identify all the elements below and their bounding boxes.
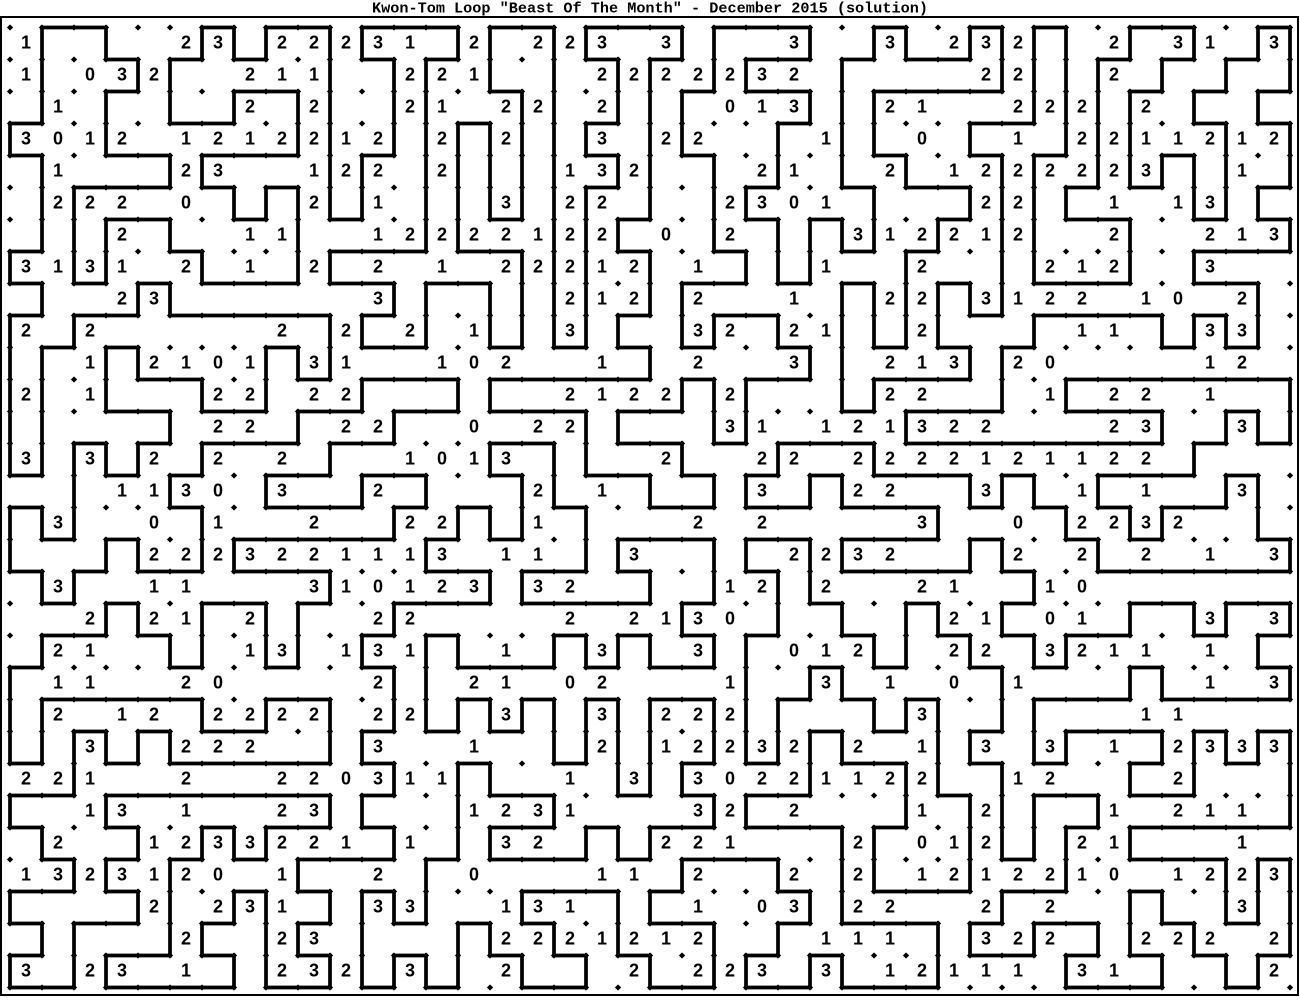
svg-text:2: 2 xyxy=(821,576,831,596)
svg-text:2: 2 xyxy=(597,192,607,212)
svg-text:1: 1 xyxy=(981,608,991,628)
svg-text:2: 2 xyxy=(1077,640,1087,660)
svg-text:1: 1 xyxy=(181,800,191,820)
svg-text:2: 2 xyxy=(789,544,799,564)
svg-text:2: 2 xyxy=(181,736,191,756)
svg-text:2: 2 xyxy=(917,448,927,468)
svg-text:2: 2 xyxy=(117,288,127,308)
svg-text:1: 1 xyxy=(597,352,607,372)
svg-text:2: 2 xyxy=(245,96,255,116)
svg-text:2: 2 xyxy=(629,288,639,308)
svg-text:1: 1 xyxy=(501,672,511,692)
svg-text:2: 2 xyxy=(373,256,383,276)
svg-text:3: 3 xyxy=(981,480,991,500)
svg-text:1: 1 xyxy=(629,864,639,884)
svg-text:2: 2 xyxy=(309,256,319,276)
svg-text:2: 2 xyxy=(885,384,895,404)
svg-text:1: 1 xyxy=(149,864,159,884)
svg-text:0: 0 xyxy=(565,672,575,692)
svg-text:1: 1 xyxy=(661,608,671,628)
svg-text:2: 2 xyxy=(533,416,543,436)
svg-text:3: 3 xyxy=(693,320,703,340)
svg-text:2: 2 xyxy=(437,64,447,84)
svg-text:1: 1 xyxy=(597,384,607,404)
svg-text:2: 2 xyxy=(1109,160,1119,180)
svg-text:2: 2 xyxy=(533,96,543,116)
svg-text:2: 2 xyxy=(341,416,351,436)
svg-text:2: 2 xyxy=(1269,928,1279,948)
svg-text:2: 2 xyxy=(405,224,415,244)
svg-text:3: 3 xyxy=(1205,256,1215,276)
svg-text:2: 2 xyxy=(629,928,639,948)
svg-text:2: 2 xyxy=(501,128,511,148)
svg-text:1: 1 xyxy=(917,96,927,116)
svg-text:1: 1 xyxy=(405,32,415,52)
svg-text:1: 1 xyxy=(949,960,959,980)
svg-text:1: 1 xyxy=(181,352,191,372)
svg-text:1: 1 xyxy=(373,192,383,212)
svg-text:2: 2 xyxy=(789,864,799,884)
svg-text:2: 2 xyxy=(1109,384,1119,404)
svg-text:2: 2 xyxy=(1237,352,1247,372)
svg-text:1: 1 xyxy=(565,768,575,788)
svg-text:2: 2 xyxy=(1077,832,1087,852)
svg-text:0: 0 xyxy=(437,448,447,468)
svg-text:2: 2 xyxy=(181,160,191,180)
svg-text:3: 3 xyxy=(533,800,543,820)
svg-text:2: 2 xyxy=(1109,128,1119,148)
svg-text:2: 2 xyxy=(1173,512,1183,532)
svg-text:0: 0 xyxy=(789,640,799,660)
svg-text:2: 2 xyxy=(1013,64,1023,84)
svg-text:1: 1 xyxy=(245,224,255,244)
svg-text:1: 1 xyxy=(117,704,127,724)
svg-text:1: 1 xyxy=(405,640,415,660)
svg-text:2: 2 xyxy=(437,576,447,596)
svg-text:2: 2 xyxy=(725,704,735,724)
svg-text:1: 1 xyxy=(1109,320,1119,340)
svg-text:2: 2 xyxy=(949,608,959,628)
svg-text:3: 3 xyxy=(725,416,735,436)
svg-text:2: 2 xyxy=(853,864,863,884)
svg-text:2: 2 xyxy=(565,928,575,948)
svg-text:2: 2 xyxy=(85,864,95,884)
svg-text:2: 2 xyxy=(885,480,895,500)
svg-text:1: 1 xyxy=(821,768,831,788)
svg-text:3: 3 xyxy=(981,32,991,52)
svg-text:2: 2 xyxy=(949,640,959,660)
svg-text:1: 1 xyxy=(501,896,511,916)
svg-text:3: 3 xyxy=(1141,512,1151,532)
svg-text:3: 3 xyxy=(1141,160,1151,180)
svg-text:1: 1 xyxy=(917,800,927,820)
svg-text:3: 3 xyxy=(629,544,639,564)
svg-text:2: 2 xyxy=(309,512,319,532)
svg-text:2: 2 xyxy=(213,544,223,564)
svg-text:1: 1 xyxy=(1141,288,1151,308)
svg-text:3: 3 xyxy=(21,256,31,276)
svg-text:2: 2 xyxy=(981,896,991,916)
svg-text:3: 3 xyxy=(821,672,831,692)
svg-text:1: 1 xyxy=(981,864,991,884)
svg-text:1: 1 xyxy=(725,672,735,692)
svg-text:2: 2 xyxy=(149,608,159,628)
svg-text:3: 3 xyxy=(917,704,927,724)
svg-text:2: 2 xyxy=(21,320,31,340)
svg-text:3: 3 xyxy=(1237,896,1247,916)
svg-text:1: 1 xyxy=(597,864,607,884)
svg-text:1: 1 xyxy=(917,736,927,756)
svg-text:3: 3 xyxy=(1205,736,1215,756)
svg-text:3: 3 xyxy=(1269,544,1279,564)
svg-text:2: 2 xyxy=(53,832,63,852)
svg-text:2: 2 xyxy=(917,384,927,404)
svg-text:2: 2 xyxy=(85,608,95,628)
svg-text:1: 1 xyxy=(725,832,735,852)
svg-text:2: 2 xyxy=(437,224,447,244)
svg-text:2: 2 xyxy=(917,576,927,596)
svg-text:3: 3 xyxy=(1141,416,1151,436)
svg-text:2: 2 xyxy=(309,384,319,404)
svg-text:2: 2 xyxy=(725,224,735,244)
svg-text:1: 1 xyxy=(949,160,959,180)
svg-text:2: 2 xyxy=(1045,896,1055,916)
svg-text:1: 1 xyxy=(1013,960,1023,980)
svg-text:1: 1 xyxy=(1237,160,1247,180)
svg-text:2: 2 xyxy=(1013,352,1023,372)
svg-text:1: 1 xyxy=(853,768,863,788)
svg-text:1: 1 xyxy=(885,416,895,436)
svg-text:2: 2 xyxy=(501,960,511,980)
svg-text:1: 1 xyxy=(1205,800,1215,820)
svg-text:2: 2 xyxy=(693,736,703,756)
svg-text:2: 2 xyxy=(533,480,543,500)
svg-text:2: 2 xyxy=(757,448,767,468)
svg-text:2: 2 xyxy=(277,544,287,564)
svg-text:2: 2 xyxy=(405,64,415,84)
svg-text:3: 3 xyxy=(53,576,63,596)
svg-text:3: 3 xyxy=(757,480,767,500)
svg-text:1: 1 xyxy=(1077,320,1087,340)
svg-text:2: 2 xyxy=(1077,512,1087,532)
svg-text:3: 3 xyxy=(1269,736,1279,756)
svg-text:0: 0 xyxy=(213,672,223,692)
svg-text:1: 1 xyxy=(501,544,511,564)
svg-text:1: 1 xyxy=(565,800,575,820)
svg-text:2: 2 xyxy=(245,64,255,84)
svg-text:1: 1 xyxy=(885,672,895,692)
svg-text:0: 0 xyxy=(213,352,223,372)
svg-text:3: 3 xyxy=(693,608,703,628)
svg-text:2: 2 xyxy=(501,928,511,948)
svg-text:2: 2 xyxy=(1205,128,1215,148)
svg-text:0: 0 xyxy=(469,864,479,884)
svg-text:1: 1 xyxy=(1013,672,1023,692)
svg-text:1: 1 xyxy=(181,608,191,628)
svg-text:2: 2 xyxy=(277,320,287,340)
svg-text:1: 1 xyxy=(693,256,703,276)
svg-text:2: 2 xyxy=(1045,768,1055,788)
svg-text:3: 3 xyxy=(373,32,383,52)
svg-text:2: 2 xyxy=(661,832,671,852)
svg-text:2: 2 xyxy=(405,96,415,116)
svg-text:2: 2 xyxy=(597,736,607,756)
svg-text:0: 0 xyxy=(949,672,959,692)
svg-text:2: 2 xyxy=(725,64,735,84)
svg-text:3: 3 xyxy=(1269,864,1279,884)
svg-text:1: 1 xyxy=(469,736,479,756)
svg-text:3: 3 xyxy=(1077,960,1087,980)
svg-text:2: 2 xyxy=(1109,256,1119,276)
svg-text:3: 3 xyxy=(245,544,255,564)
svg-text:2: 2 xyxy=(949,864,959,884)
svg-text:2: 2 xyxy=(725,960,735,980)
svg-text:1: 1 xyxy=(341,352,351,372)
svg-text:2: 2 xyxy=(789,736,799,756)
svg-text:3: 3 xyxy=(853,224,863,244)
svg-text:2: 2 xyxy=(1205,928,1215,948)
svg-text:2: 2 xyxy=(1173,800,1183,820)
svg-text:2: 2 xyxy=(885,288,895,308)
svg-text:3: 3 xyxy=(21,960,31,980)
svg-text:2: 2 xyxy=(245,704,255,724)
svg-text:2: 2 xyxy=(309,32,319,52)
svg-text:1: 1 xyxy=(437,256,447,276)
svg-text:2: 2 xyxy=(1013,448,1023,468)
svg-text:1: 1 xyxy=(277,864,287,884)
svg-text:Kwon-Tom Loop "Beast Of The Mo: Kwon-Tom Loop "Beast Of The Month" - Dec… xyxy=(372,0,928,18)
svg-text:1: 1 xyxy=(917,352,927,372)
svg-text:3: 3 xyxy=(757,64,767,84)
svg-text:3: 3 xyxy=(1237,320,1247,340)
svg-text:3: 3 xyxy=(309,928,319,948)
svg-text:0: 0 xyxy=(373,576,383,596)
svg-text:1: 1 xyxy=(821,928,831,948)
svg-text:2: 2 xyxy=(405,704,415,724)
svg-text:1: 1 xyxy=(277,224,287,244)
svg-text:3: 3 xyxy=(629,768,639,788)
svg-text:2: 2 xyxy=(693,288,703,308)
svg-text:2: 2 xyxy=(213,416,223,436)
svg-text:0: 0 xyxy=(789,192,799,212)
svg-text:3: 3 xyxy=(117,864,127,884)
svg-text:2: 2 xyxy=(693,704,703,724)
svg-text:3: 3 xyxy=(373,640,383,660)
svg-text:2: 2 xyxy=(789,768,799,788)
svg-text:3: 3 xyxy=(693,800,703,820)
svg-text:2: 2 xyxy=(245,416,255,436)
svg-text:2: 2 xyxy=(533,32,543,52)
svg-text:1: 1 xyxy=(85,768,95,788)
svg-text:1: 1 xyxy=(597,288,607,308)
svg-text:1: 1 xyxy=(1173,192,1183,212)
svg-text:1: 1 xyxy=(245,352,255,372)
svg-text:0: 0 xyxy=(725,608,735,628)
svg-text:1: 1 xyxy=(1077,480,1087,500)
svg-text:1: 1 xyxy=(341,832,351,852)
svg-text:2: 2 xyxy=(661,384,671,404)
svg-text:1: 1 xyxy=(1205,384,1215,404)
svg-text:2: 2 xyxy=(501,800,511,820)
svg-text:2: 2 xyxy=(373,864,383,884)
svg-text:2: 2 xyxy=(1173,928,1183,948)
svg-text:2: 2 xyxy=(981,64,991,84)
svg-text:2: 2 xyxy=(1013,160,1023,180)
svg-text:2: 2 xyxy=(789,448,799,468)
svg-text:2: 2 xyxy=(373,608,383,628)
svg-text:1: 1 xyxy=(917,864,927,884)
svg-text:0: 0 xyxy=(661,224,671,244)
svg-text:1: 1 xyxy=(597,256,607,276)
svg-text:1: 1 xyxy=(1141,480,1151,500)
svg-text:2: 2 xyxy=(949,448,959,468)
svg-text:2: 2 xyxy=(1109,64,1119,84)
svg-text:1: 1 xyxy=(725,576,735,596)
svg-text:3: 3 xyxy=(981,928,991,948)
svg-text:1: 1 xyxy=(85,384,95,404)
svg-text:2: 2 xyxy=(437,512,447,532)
svg-text:2: 2 xyxy=(181,256,191,276)
svg-text:1: 1 xyxy=(1045,576,1055,596)
svg-text:0: 0 xyxy=(149,512,159,532)
svg-text:1: 1 xyxy=(277,896,287,916)
svg-text:0: 0 xyxy=(85,64,95,84)
svg-text:3: 3 xyxy=(117,960,127,980)
svg-text:2: 2 xyxy=(309,544,319,564)
svg-text:2: 2 xyxy=(949,416,959,436)
svg-text:1: 1 xyxy=(1237,800,1247,820)
svg-text:3: 3 xyxy=(565,320,575,340)
svg-text:2: 2 xyxy=(661,128,671,148)
svg-text:2: 2 xyxy=(757,512,767,532)
svg-text:1: 1 xyxy=(1205,352,1215,372)
svg-text:2: 2 xyxy=(565,192,575,212)
svg-text:2: 2 xyxy=(181,928,191,948)
svg-text:1: 1 xyxy=(53,96,63,116)
svg-text:2: 2 xyxy=(725,320,735,340)
svg-text:1: 1 xyxy=(981,960,991,980)
svg-text:1: 1 xyxy=(53,256,63,276)
svg-text:2: 2 xyxy=(789,64,799,84)
svg-text:2: 2 xyxy=(501,96,511,116)
svg-text:2: 2 xyxy=(629,160,639,180)
svg-text:1: 1 xyxy=(469,448,479,468)
svg-text:2: 2 xyxy=(629,608,639,628)
svg-text:2: 2 xyxy=(53,640,63,660)
svg-text:2: 2 xyxy=(981,640,991,660)
svg-text:2: 2 xyxy=(885,160,895,180)
svg-text:1: 1 xyxy=(117,480,127,500)
svg-text:2: 2 xyxy=(1013,96,1023,116)
svg-text:3: 3 xyxy=(53,512,63,532)
svg-text:1: 1 xyxy=(885,224,895,244)
svg-text:2: 2 xyxy=(981,160,991,180)
svg-text:1: 1 xyxy=(1205,32,1215,52)
svg-text:3: 3 xyxy=(309,352,319,372)
svg-text:1: 1 xyxy=(533,224,543,244)
svg-text:2: 2 xyxy=(149,64,159,84)
svg-text:3: 3 xyxy=(501,448,511,468)
svg-text:2: 2 xyxy=(757,576,767,596)
svg-text:2: 2 xyxy=(53,704,63,724)
svg-text:3: 3 xyxy=(213,832,223,852)
svg-text:1: 1 xyxy=(885,960,895,980)
svg-text:3: 3 xyxy=(245,896,255,916)
svg-text:1: 1 xyxy=(341,544,351,564)
svg-text:3: 3 xyxy=(1269,224,1279,244)
svg-text:2: 2 xyxy=(533,832,543,852)
svg-text:3: 3 xyxy=(1269,672,1279,692)
svg-text:1: 1 xyxy=(533,512,543,532)
svg-text:3: 3 xyxy=(437,544,447,564)
svg-text:1: 1 xyxy=(1141,704,1151,724)
svg-text:2: 2 xyxy=(885,896,895,916)
svg-text:1: 1 xyxy=(821,128,831,148)
svg-text:2: 2 xyxy=(245,736,255,756)
svg-text:3: 3 xyxy=(597,128,607,148)
svg-text:1: 1 xyxy=(405,768,415,788)
svg-text:3: 3 xyxy=(789,352,799,372)
svg-text:3: 3 xyxy=(1205,320,1215,340)
svg-text:1: 1 xyxy=(501,640,511,660)
svg-text:3: 3 xyxy=(757,960,767,980)
svg-text:3: 3 xyxy=(405,960,415,980)
svg-text:3: 3 xyxy=(501,704,511,724)
svg-text:2: 2 xyxy=(1109,224,1119,244)
svg-text:1: 1 xyxy=(821,192,831,212)
svg-text:3: 3 xyxy=(309,960,319,980)
svg-text:2: 2 xyxy=(1013,224,1023,244)
svg-text:3: 3 xyxy=(501,192,511,212)
svg-text:2: 2 xyxy=(277,704,287,724)
svg-text:2: 2 xyxy=(853,640,863,660)
svg-text:2: 2 xyxy=(277,768,287,788)
svg-text:1: 1 xyxy=(1109,800,1119,820)
svg-text:1: 1 xyxy=(789,160,799,180)
svg-text:3: 3 xyxy=(1269,608,1279,628)
svg-text:1: 1 xyxy=(405,448,415,468)
svg-text:2: 2 xyxy=(1045,96,1055,116)
svg-text:2: 2 xyxy=(1141,384,1151,404)
svg-text:1: 1 xyxy=(405,576,415,596)
svg-text:2: 2 xyxy=(373,128,383,148)
svg-text:3: 3 xyxy=(373,736,383,756)
svg-text:2: 2 xyxy=(373,672,383,692)
svg-text:2: 2 xyxy=(341,320,351,340)
svg-text:2: 2 xyxy=(213,704,223,724)
svg-text:2: 2 xyxy=(213,896,223,916)
svg-text:2: 2 xyxy=(661,704,671,724)
svg-text:2: 2 xyxy=(885,96,895,116)
svg-text:1: 1 xyxy=(437,96,447,116)
svg-text:2: 2 xyxy=(853,736,863,756)
svg-text:1: 1 xyxy=(1077,256,1087,276)
svg-text:3: 3 xyxy=(181,480,191,500)
svg-text:2: 2 xyxy=(981,416,991,436)
svg-text:1: 1 xyxy=(597,480,607,500)
svg-text:2: 2 xyxy=(341,960,351,980)
svg-text:1: 1 xyxy=(373,544,383,564)
svg-text:0: 0 xyxy=(469,352,479,372)
svg-text:3: 3 xyxy=(917,416,927,436)
svg-text:1: 1 xyxy=(1045,384,1055,404)
svg-text:2: 2 xyxy=(309,192,319,212)
svg-text:1: 1 xyxy=(469,320,479,340)
svg-text:1: 1 xyxy=(949,832,959,852)
svg-text:3: 3 xyxy=(53,864,63,884)
svg-text:2: 2 xyxy=(501,352,511,372)
svg-text:0: 0 xyxy=(917,832,927,852)
